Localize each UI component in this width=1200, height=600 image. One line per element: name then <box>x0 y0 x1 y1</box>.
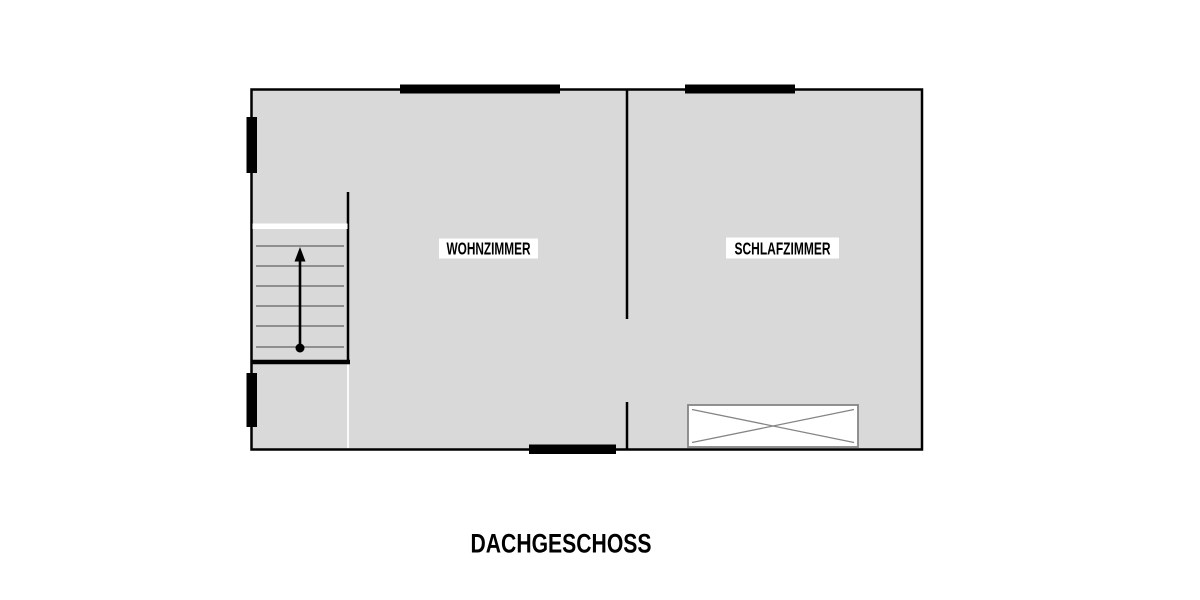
floor-title: DACHGESCHOSS <box>471 529 652 559</box>
floorplan: WOHNZIMMER SCHLAFZIMMER <box>247 85 923 455</box>
closet-symbol <box>688 405 858 447</box>
room-label-text: SCHLAFZIMMER <box>735 239 831 259</box>
window-left-upper <box>247 117 258 173</box>
stair-arrow-start-dot <box>296 344 305 353</box>
floor-outline <box>252 90 923 450</box>
window-top-schlafzimmer <box>685 85 795 94</box>
floorplan-page: WOHNZIMMER SCHLAFZIMMER DACHGESCHOSS <box>0 0 1200 600</box>
floorplan-canvas: WOHNZIMMER SCHLAFZIMMER DACHGESCHOSS <box>0 0 1200 600</box>
room-label-text: WOHNZIMMER <box>447 239 531 259</box>
window-left-lower <box>247 373 258 427</box>
room-label-wohnzimmer: WOHNZIMMER <box>439 239 538 259</box>
window-top-wohnzimmer <box>400 85 560 94</box>
room-label-schlafzimmer: SCHLAFZIMMER <box>726 238 839 259</box>
staircase-break-line <box>253 224 348 230</box>
window-bottom <box>529 445 616 455</box>
